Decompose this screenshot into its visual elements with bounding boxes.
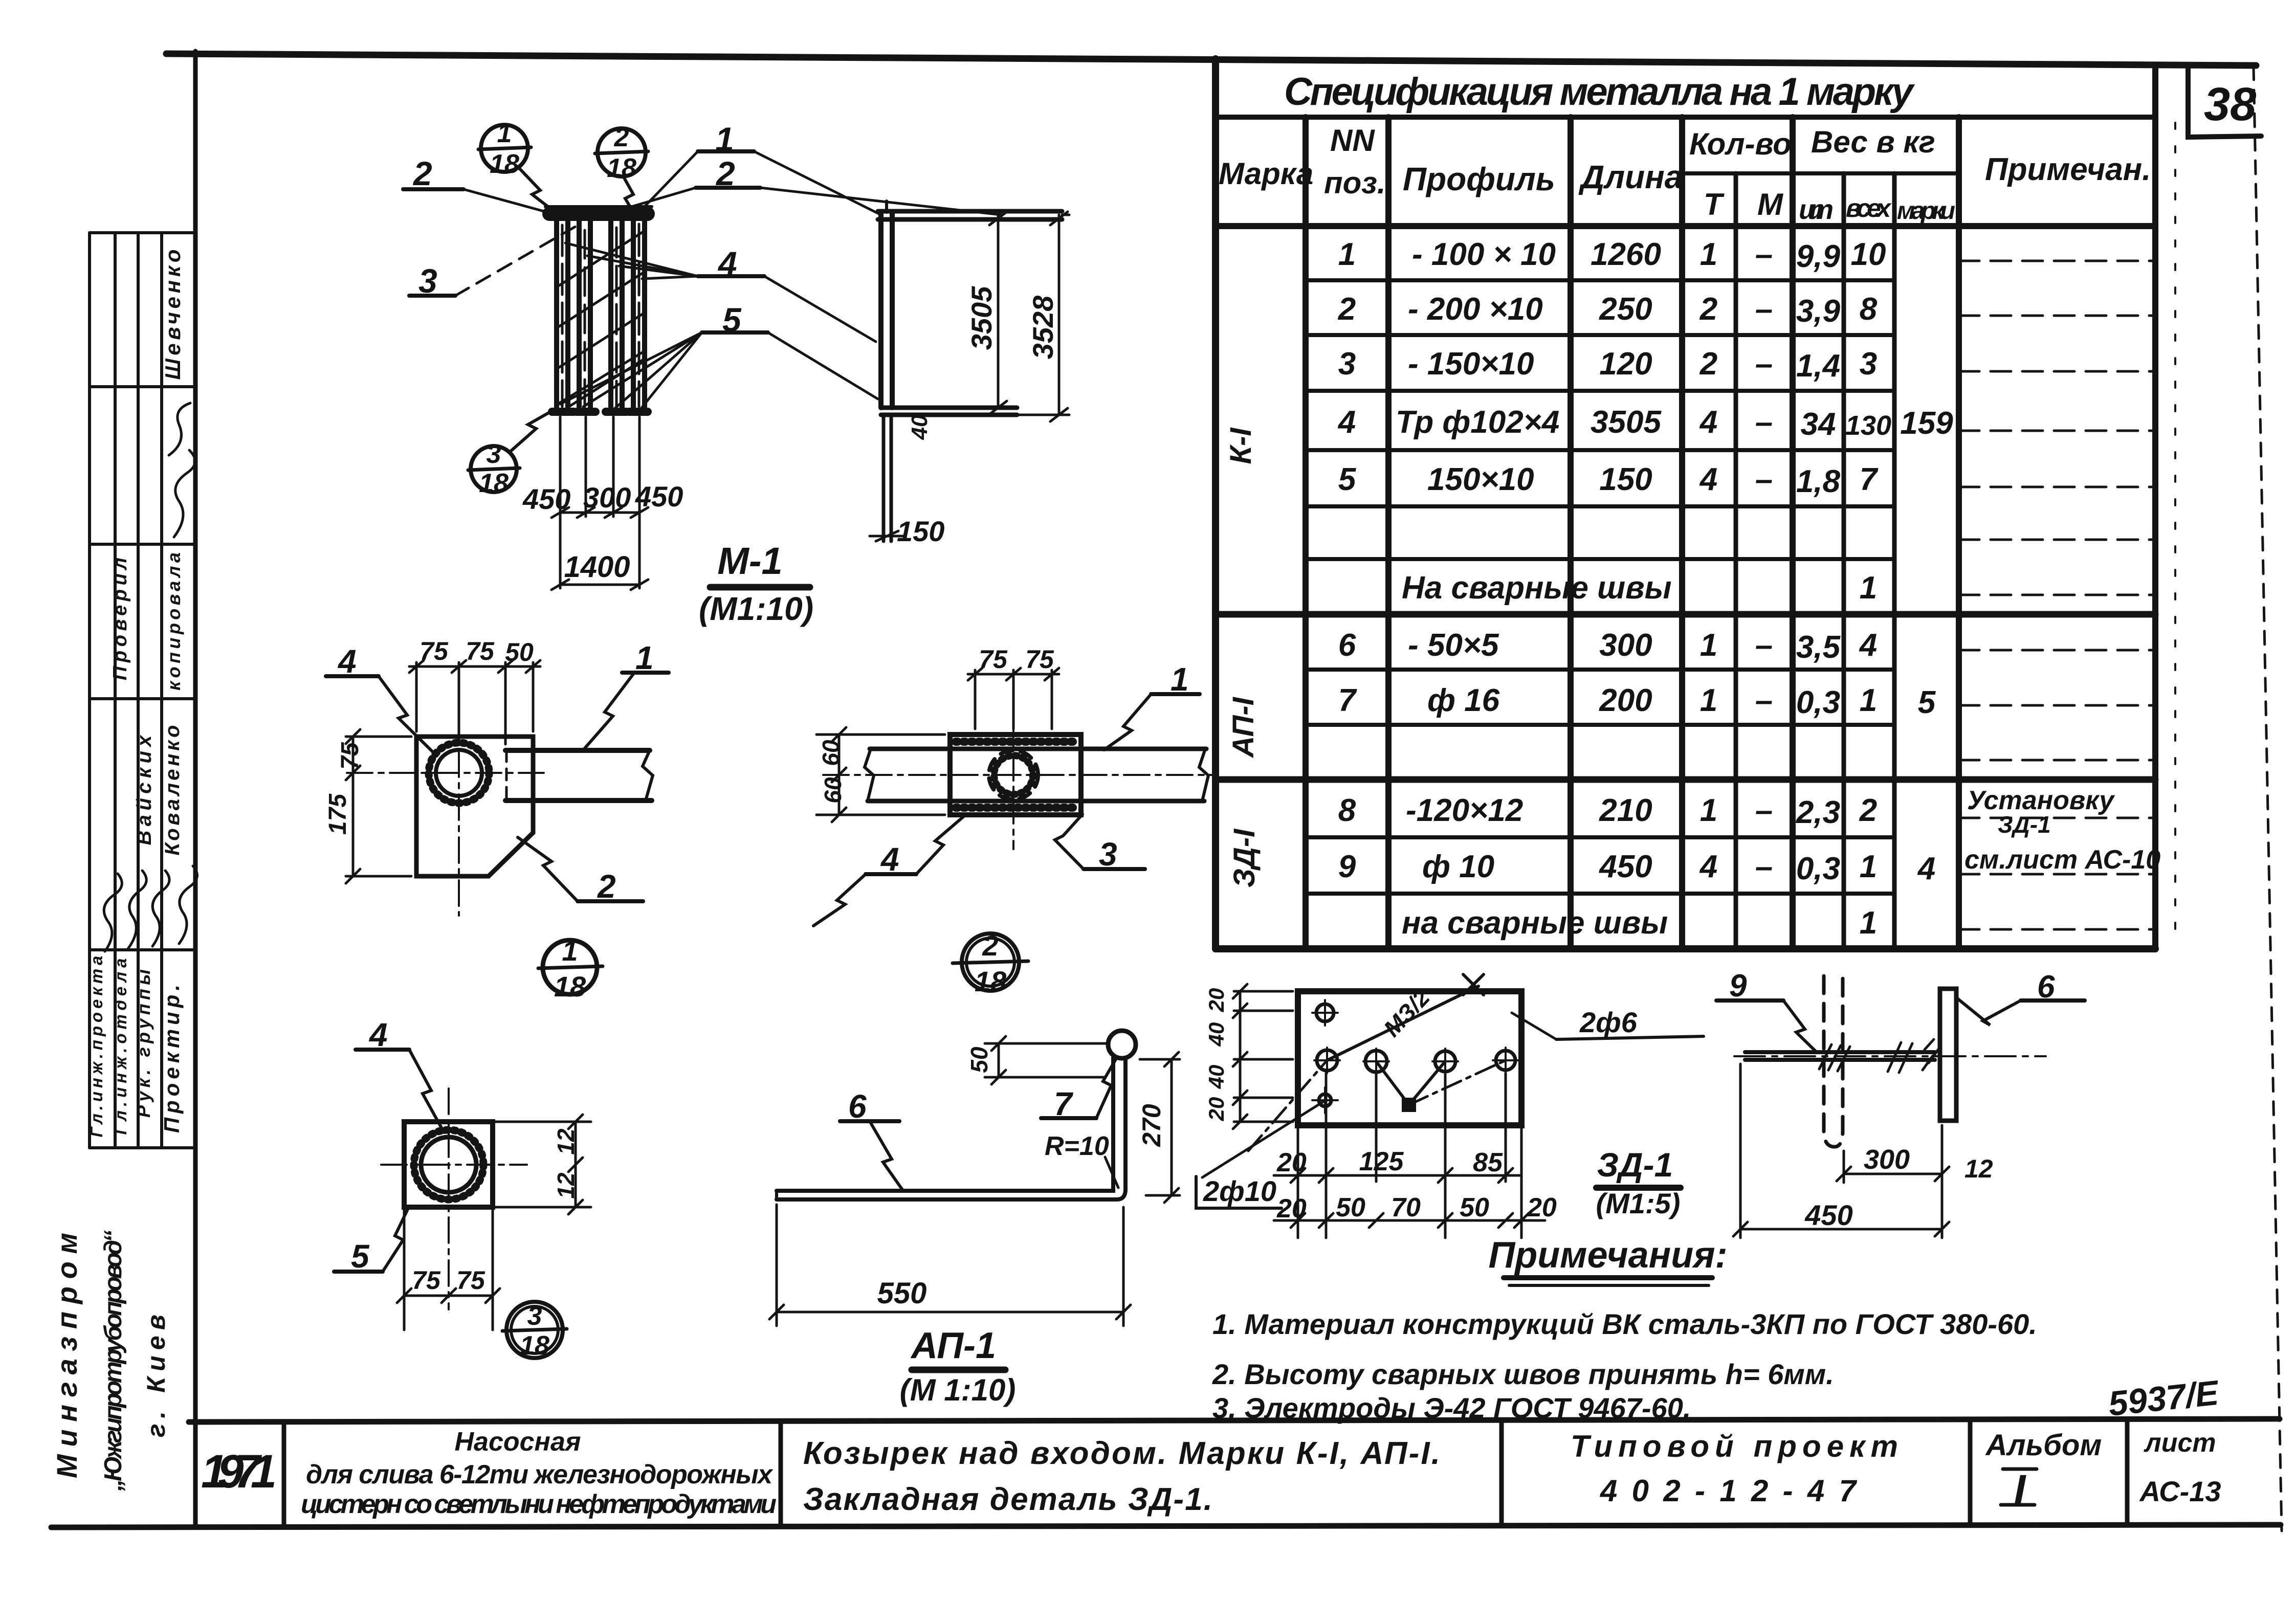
- svg-text:Альбом: Альбом: [1985, 1429, 2102, 1462]
- svg-text:- 200 ×10: - 200 ×10: [1408, 292, 1543, 327]
- svg-text:3. Электроды Э-42 ГОСТ 9467-60: 3. Электроды Э-42 ГОСТ 9467-60.: [1212, 1392, 1691, 1424]
- svg-text:2: 2: [1699, 346, 1717, 382]
- svg-text:159: 159: [1900, 406, 1953, 441]
- svg-text:3528: 3528: [1027, 295, 1059, 359]
- svg-text:Рук. группы: Рук. группы: [133, 969, 154, 1118]
- svg-text:7: 7: [1860, 462, 1879, 497]
- svg-text:1,4: 1,4: [1796, 348, 1840, 384]
- svg-text:75: 75: [466, 637, 495, 665]
- svg-text:Шевченко: Шевченко: [161, 250, 185, 380]
- svg-text:270: 270: [1137, 1104, 1166, 1147]
- svg-text:Проектир.: Проектир.: [160, 985, 184, 1133]
- svg-text:2. Высоту сварных швов прин: 2. Высоту сварных швов принять h= 6мм.: [1212, 1358, 1834, 1390]
- svg-text:1400: 1400: [564, 550, 630, 584]
- svg-text:4: 4: [1699, 462, 1717, 497]
- svg-text:10: 10: [1851, 237, 1886, 272]
- svg-text:9: 9: [1729, 968, 1747, 1004]
- svg-text:9,9: 9,9: [1796, 239, 1841, 274]
- svg-text:ЗД-1: ЗД-1: [1597, 1146, 1673, 1184]
- svg-text:200: 200: [1599, 683, 1652, 718]
- svg-text:–: –: [1755, 683, 1773, 718]
- svg-text:К-I: К-I: [1224, 427, 1257, 464]
- svg-text:2ф6: 2ф6: [1579, 1006, 1638, 1038]
- svg-text:всех: всех: [1846, 194, 1892, 223]
- svg-text:Профиль: Профиль: [1403, 161, 1555, 197]
- svg-text:(М1:5): (М1:5): [1596, 1187, 1681, 1219]
- svg-text:марки: марки: [1897, 197, 1955, 225]
- svg-text:2: 2: [1338, 292, 1356, 327]
- svg-text:20: 20: [1204, 988, 1228, 1013]
- svg-text:300: 300: [1599, 628, 1652, 663]
- svg-text:1260: 1260: [1591, 237, 1661, 272]
- svg-text:20: 20: [1204, 1097, 1228, 1122]
- svg-text:на сварные швы: на сварные швы: [1402, 905, 1668, 941]
- svg-text:2: 2: [982, 929, 998, 962]
- svg-text:3505: 3505: [965, 286, 998, 350]
- svg-text:5: 5: [1338, 462, 1357, 497]
- svg-text:АС-13: АС-13: [2138, 1475, 2221, 1507]
- svg-text:Спецификация металла на 1 марк: Спецификация металла на 1 марку: [1284, 70, 1915, 114]
- svg-text:- 100 × 10: - 100 × 10: [1412, 237, 1556, 272]
- svg-text:1: 1: [1700, 237, 1717, 272]
- svg-text:(М1:10): (М1:10): [699, 590, 813, 627]
- svg-text:АП-I: АП-I: [1227, 696, 1260, 758]
- svg-text:1: 1: [1860, 849, 1877, 884]
- svg-text:1: 1: [1338, 237, 1356, 272]
- svg-text:40: 40: [1204, 1022, 1228, 1047]
- svg-text:2: 2: [1699, 292, 1717, 327]
- svg-text:130: 130: [1845, 410, 1891, 441]
- svg-text:–: –: [1755, 292, 1773, 327]
- svg-text:300: 300: [1864, 1144, 1910, 1175]
- svg-text:75: 75: [412, 1266, 441, 1295]
- svg-text:М-1: М-1: [717, 540, 782, 582]
- svg-text:Закладная деталь ЗД-1.: Закладная деталь ЗД-1.: [803, 1482, 1212, 1517]
- svg-text:для слива 6-12ти железнодорожн: для слива 6-12ти железнодорожных: [306, 1460, 774, 1489]
- svg-text:5: 5: [1918, 685, 1936, 720]
- svg-text:„Южгипротрубопровод“: „Южгипротрубопровод“: [100, 1230, 127, 1492]
- svg-text:50: 50: [1460, 1193, 1489, 1222]
- svg-text:–: –: [1755, 346, 1773, 382]
- svg-text:цистерн со светлыни нефтепроду: цистерн со светлыни нефтепродуктами: [301, 1489, 777, 1519]
- svg-text:8: 8: [1860, 292, 1878, 327]
- svg-text:9: 9: [1338, 849, 1356, 884]
- svg-text:- 150×10: - 150×10: [1408, 346, 1534, 382]
- svg-text:75: 75: [420, 637, 449, 665]
- svg-text:18: 18: [490, 149, 519, 179]
- svg-text:2,3: 2,3: [1796, 795, 1840, 830]
- svg-text:На сварные швы: На сварные швы: [1402, 570, 1672, 606]
- svg-text:150: 150: [1599, 462, 1652, 497]
- svg-text:3: 3: [1338, 346, 1356, 382]
- svg-text:150×10: 150×10: [1427, 462, 1534, 497]
- svg-text:1: 1: [1860, 683, 1877, 718]
- svg-text:175: 175: [324, 793, 351, 835]
- svg-text:40: 40: [907, 414, 932, 440]
- svg-text:R=10: R=10: [1045, 1131, 1109, 1161]
- svg-text:Марка: Марка: [1219, 157, 1313, 191]
- svg-text:12: 12: [553, 1128, 579, 1155]
- svg-text:75: 75: [456, 1266, 485, 1295]
- svg-text:1: 1: [562, 935, 578, 967]
- svg-text:50: 50: [505, 638, 534, 666]
- svg-text:60: 60: [818, 740, 844, 766]
- svg-text:1971: 1971: [201, 1446, 277, 1498]
- svg-text:2: 2: [1859, 793, 1877, 828]
- svg-text:125: 125: [1359, 1147, 1404, 1176]
- svg-text:–: –: [1755, 849, 1773, 884]
- svg-text:75: 75: [337, 742, 364, 770]
- svg-text:ф 10: ф 10: [1422, 849, 1494, 884]
- svg-text:лист: лист: [2143, 1428, 2216, 1458]
- svg-text:Длина: Длина: [1578, 159, 1683, 195]
- svg-text:38: 38: [2204, 78, 2257, 130]
- svg-text:18: 18: [975, 965, 1007, 997]
- svg-text:АП-1: АП-1: [910, 1325, 996, 1366]
- svg-text:70: 70: [1391, 1193, 1421, 1222]
- svg-text:поз.: поз.: [1324, 166, 1386, 200]
- svg-text:Коваленко: Коваленко: [161, 725, 184, 856]
- svg-text:ф 16: ф 16: [1427, 683, 1500, 718]
- svg-text:18: 18: [607, 153, 636, 183]
- svg-text:0,3: 0,3: [1796, 685, 1840, 720]
- svg-text:Тр ф102×4: Тр ф102×4: [1396, 405, 1559, 440]
- svg-text:40: 40: [1204, 1065, 1228, 1089]
- svg-text:75: 75: [979, 645, 1008, 674]
- svg-text:402-12-47: 402-12-47: [1600, 1474, 1858, 1508]
- svg-text:2ф10: 2ф10: [1203, 1175, 1276, 1207]
- svg-text:7: 7: [1338, 683, 1357, 718]
- svg-text:210: 210: [1599, 793, 1652, 828]
- svg-text:4: 4: [1859, 628, 1877, 663]
- svg-text:–: –: [1755, 628, 1773, 663]
- svg-text:450: 450: [1598, 849, 1652, 884]
- svg-text:300: 300: [583, 481, 631, 514]
- svg-text:12: 12: [1964, 1154, 1993, 1183]
- svg-text:6: 6: [1338, 628, 1356, 663]
- svg-text:1: 1: [1860, 905, 1877, 941]
- svg-text:1: 1: [1700, 683, 1717, 718]
- svg-text:4: 4: [1337, 405, 1356, 440]
- svg-text:3: 3: [487, 439, 501, 469]
- svg-text:NN: NN: [1330, 123, 1375, 158]
- svg-text:120: 120: [1599, 346, 1652, 382]
- svg-text:20: 20: [1276, 1194, 1307, 1224]
- svg-text:Примечания:: Примечания:: [1488, 1235, 1727, 1276]
- svg-text:85: 85: [1473, 1148, 1503, 1177]
- svg-text:2: 2: [412, 154, 432, 192]
- svg-text:1. Материал конструкций ВК ста: 1. Материал конструкций ВК сталь-3КП по …: [1212, 1308, 2037, 1340]
- svg-text:М: М: [1757, 187, 1784, 221]
- svg-text:0,3: 0,3: [1796, 851, 1840, 886]
- svg-text:50: 50: [966, 1047, 992, 1073]
- svg-text:4: 4: [1699, 405, 1717, 440]
- svg-text:Примечан.: Примечан.: [1985, 152, 2151, 187]
- svg-text:50: 50: [1336, 1193, 1365, 1222]
- svg-text:шт: шт: [1799, 194, 1834, 225]
- svg-text:1,8: 1,8: [1796, 464, 1841, 499]
- svg-text:150: 150: [897, 515, 944, 547]
- svg-text:450: 450: [522, 483, 570, 515]
- svg-text:2: 2: [614, 123, 629, 152]
- svg-text:18: 18: [520, 1331, 549, 1361]
- svg-text:550: 550: [877, 1277, 927, 1310]
- svg-text:8: 8: [1338, 793, 1356, 828]
- svg-text:Козырек над входом. Марки К-I,: Козырек над входом. Марки К-I, АП-I.: [803, 1436, 1440, 1471]
- svg-text:ЗД-1: ЗД-1: [1998, 811, 2051, 838]
- svg-text:1: 1: [497, 119, 512, 148]
- svg-text:–: –: [1755, 405, 1773, 440]
- svg-text:Насосная: Насосная: [454, 1427, 581, 1457]
- svg-text:- 50×5: - 50×5: [1408, 628, 1499, 663]
- svg-text:3: 3: [1860, 346, 1877, 382]
- svg-text:см.лист АС-10: см.лист АС-10: [1964, 845, 2160, 875]
- svg-text:4: 4: [1699, 849, 1717, 884]
- svg-text:20: 20: [1276, 1148, 1307, 1177]
- svg-text:450: 450: [635, 480, 683, 513]
- svg-text:20: 20: [1527, 1193, 1557, 1222]
- svg-text:12: 12: [553, 1172, 579, 1199]
- svg-text:(М 1:10): (М 1:10): [900, 1373, 1016, 1407]
- svg-text:1: 1: [1860, 570, 1877, 606]
- svg-text:4: 4: [1917, 851, 1935, 886]
- svg-text:3505: 3505: [1591, 405, 1662, 440]
- svg-text:60: 60: [820, 777, 846, 804]
- svg-text:1: 1: [1700, 793, 1717, 828]
- svg-text:5: 5: [351, 1238, 370, 1275]
- svg-text:–: –: [1755, 793, 1773, 828]
- svg-text:34: 34: [1801, 407, 1836, 442]
- svg-text:ЗД-I: ЗД-I: [1228, 828, 1261, 887]
- svg-text:450: 450: [1804, 1199, 1852, 1231]
- svg-text:3,9: 3,9: [1796, 294, 1841, 329]
- svg-text:Т: Т: [1704, 187, 1725, 221]
- svg-text:250: 250: [1599, 292, 1652, 327]
- svg-text:18: 18: [554, 970, 586, 1003]
- svg-text:75: 75: [1025, 645, 1054, 674]
- svg-text:-120×12: -120×12: [1406, 793, 1523, 828]
- svg-text:–: –: [1755, 462, 1773, 497]
- svg-text:Кол-во: Кол-во: [1689, 127, 1792, 161]
- svg-text:3,5: 3,5: [1796, 630, 1841, 665]
- svg-text:18: 18: [479, 469, 509, 498]
- svg-text:Вес в кг: Вес в кг: [1811, 125, 1935, 159]
- svg-text:3: 3: [527, 1301, 542, 1331]
- svg-text:1: 1: [1700, 628, 1717, 663]
- svg-text:–: –: [1755, 237, 1773, 272]
